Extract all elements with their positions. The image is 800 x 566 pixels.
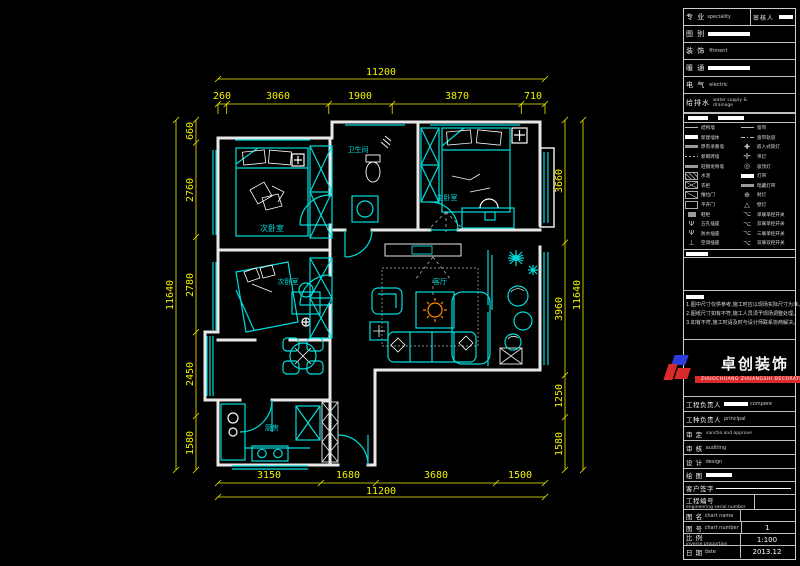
legend-label: 壁灯 (757, 201, 766, 207)
legend-ceilinglamp-icon: ◎ (740, 162, 755, 170)
legend-label: 灯带 (757, 173, 766, 179)
dim-right-1: 3960 (554, 297, 565, 321)
legend-wall-line-icon (684, 124, 699, 132)
bed-secondary-2 (236, 262, 298, 332)
legend-socket5-icon: Ψ (684, 220, 699, 228)
dim-left-3: 2450 (185, 362, 196, 386)
empty-remark-box (684, 257, 795, 291)
header-hvac-zh: 暖 通 (686, 63, 705, 73)
legend-closet-icon (684, 181, 699, 189)
cad-canvas: 11200 260 3060 1900 3870 710 3150 1680 3… (0, 0, 800, 566)
legend-label: 嵌入式筒灯 (757, 144, 780, 150)
sign-label-design: 设 计 (686, 457, 703, 467)
column-layer (322, 348, 522, 462)
window-layer (207, 125, 554, 469)
legend-downlight-icon: ✚ (740, 143, 755, 151)
info-table: 工程编号 engineering serial number 图 名 chart… (684, 495, 795, 558)
legend-label: 五孔插座 (701, 221, 719, 227)
info-label-number: 图 号 (686, 523, 703, 533)
legend-label: 平开门 (701, 201, 715, 207)
dim-bottom-3: 1500 (508, 470, 532, 481)
kitchen-counter (221, 404, 320, 461)
draw-bar (706, 473, 732, 477)
wardrobe-master (421, 128, 439, 202)
dim-bottom-0: 3150 (257, 470, 281, 481)
legend-switch4-icon: ⌥ (740, 239, 755, 247)
legend-label: 水泥 (701, 173, 710, 179)
legend-switch3-icon: ⌥ (740, 229, 755, 237)
sign-bar (724, 402, 748, 406)
sign-label-draw: 绘 图 (686, 470, 703, 480)
dim-right-3: 1580 (554, 432, 565, 456)
header-speciality-en: speciality (707, 14, 731, 20)
tv-cabinet (385, 244, 461, 256)
balcony-plants (508, 250, 538, 275)
legend-label: 鞋柜 (701, 211, 710, 217)
room-label-bedroom1: 次卧室 (260, 223, 284, 233)
notes-header-bar (686, 252, 708, 256)
legend-label: 射灯 (757, 192, 766, 198)
legend-label: 窗帘轨道 (757, 134, 775, 140)
legend-curtain-icon (740, 124, 755, 132)
company-logo-icon (664, 355, 690, 381)
dim-left-1: 2760 (185, 178, 196, 202)
sign-label-compere: 工程负责人 (686, 399, 721, 409)
legend-steelwall-icon (684, 162, 699, 170)
dim-right-total: 11640 (572, 280, 583, 310)
sign-label-principal: 工种负责人 (686, 414, 721, 424)
dim-bottom-1: 1680 (336, 470, 360, 481)
furniture-layer (221, 128, 538, 461)
legend-label: 暗藏灯带 (757, 182, 775, 188)
dim-bottom-total: 11200 (366, 486, 396, 497)
sign-label-audit: 审 核 (686, 443, 703, 453)
dim-top-4: 710 (524, 91, 542, 102)
dim-left-2: 2780 (185, 273, 196, 297)
sign-label-client: 客户签字 (686, 483, 714, 493)
dim-right-2: 1250 (554, 384, 565, 408)
legend-label: 吊灯 (757, 153, 766, 159)
toilet (366, 136, 391, 182)
auditor-signature-bar (779, 15, 793, 19)
info-en: chart number (705, 525, 739, 531)
legend-socketwp-icon: Ψ (684, 229, 699, 237)
note-line-3: 3.如有不符,施工时请及时与设计师联系协商解决。 (686, 319, 782, 327)
legend-table: 结构墙窗帘 新建墙体窗帘轨道 原有承重墙✚嵌入式筒灯 新砌砖墙✛吊灯 轻钢龙骨墙… (684, 123, 795, 248)
sign-label-approve: 审 定 (686, 429, 703, 439)
header-water-zh: 给排水 (686, 98, 710, 108)
legend-label: 空调插座 (701, 240, 719, 246)
legend-label: 单联单控开关 (757, 211, 785, 217)
notes-title-bar (686, 295, 704, 299)
legend-track-icon (740, 133, 755, 141)
room-label-bedroom2: 次卧室 (278, 277, 299, 286)
washing-machine (352, 196, 378, 222)
header-electric-zh: 电 气 (686, 80, 705, 90)
info-value-date: 2013.12 (741, 548, 793, 556)
header-table: 专 业 speciality 审核人 图 别 装 饰 fitment 暖 通 电… (684, 9, 795, 113)
title-block-panel: 专 业 speciality 审核人 图 别 装 饰 fitment 暖 通 电… (683, 8, 796, 560)
legend-label: 衣柜 (701, 182, 710, 188)
legend-pendant-icon: ✛ (740, 153, 755, 161)
legend-label: 轻钢龙骨墙 (701, 163, 724, 169)
dining-set (283, 338, 323, 374)
legend-label: 新砌砖墙 (701, 153, 719, 159)
header-category-zh: 图 别 (686, 29, 705, 39)
note-line-1: 1.图中尺寸仅供参考,施工时应以现场实际尺寸为准。 (686, 301, 782, 309)
dim-top-total: 11200 (366, 67, 396, 78)
legend-label: 双联单控开关 (757, 221, 785, 227)
header-fitment-zh: 装 饰 (686, 46, 705, 56)
company-name: 卓创装饰 (721, 353, 789, 374)
sign-en: auditing (706, 445, 727, 451)
sign-en: compere (750, 401, 772, 407)
balcony-chairs (505, 286, 532, 350)
dim-right-0: 3660 (554, 169, 565, 193)
legend-swingdoor-icon (684, 201, 699, 209)
dim-left-4: 1580 (185, 431, 196, 455)
dim-top-0: 260 (213, 91, 231, 102)
note-line-2: 2.图纸尺寸如有不符,施工人员须予现场调整处理。 (686, 310, 782, 318)
dim-top-2: 1900 (348, 91, 372, 102)
client-signature-line[interactable] (716, 488, 791, 489)
info-en: chart name (705, 513, 734, 519)
legend-label: 三联单控开关 (757, 230, 785, 236)
floor-plan-drawing: 11200 260 3060 1900 3870 710 3150 1680 3… (0, 0, 800, 566)
header-auditor-zh: 审核人 (753, 13, 774, 22)
bed-secondary-1 (236, 148, 308, 236)
hvac-bar (708, 66, 750, 70)
legend-brickwall-icon (684, 153, 699, 161)
notes-block: 1.图中尺寸仅供参考,施工时应以现场实际尺寸为准。 2.图纸尺寸如有不符,施工人… (684, 291, 795, 339)
legend-label: 双联双控开关 (757, 240, 785, 246)
legend-walllamp-icon: △ (740, 201, 755, 209)
legend-switch1-icon: ⌥ (740, 210, 755, 218)
room-label-living: 客厅 (433, 277, 447, 286)
header-electric-en: electric (709, 82, 727, 88)
legend-switch2-icon: ⌥ (740, 220, 755, 228)
room-label-master: 主卧室 (437, 193, 458, 202)
header-speciality-zh: 专 业 (686, 12, 705, 22)
dresser-master (462, 199, 514, 228)
legend-label: 防水插座 (701, 230, 719, 236)
info-en: date (705, 549, 716, 555)
armchair (372, 288, 402, 314)
sign-en: sanctio and approve (706, 431, 752, 436)
legend-header-bar2 (718, 116, 744, 120)
legend-cement-icon (684, 172, 699, 180)
legend-hiddenstrip-icon (740, 181, 755, 189)
info-value-scale: 1:100 (741, 536, 793, 544)
legend-header-bar1 (688, 116, 708, 120)
info-en: engineering serial number (686, 505, 746, 510)
dim-left-0: 660 (185, 122, 196, 140)
room-label-bathroom: 卫生间 (348, 145, 369, 154)
legend-slidingdoor-icon (684, 191, 699, 199)
info-label-date: 日 期 (686, 547, 703, 557)
side-table-lamp (370, 322, 388, 340)
legend-label: 推拉门 (701, 192, 715, 198)
header-fitment-en: fitment (709, 48, 727, 54)
sign-en: principal (724, 416, 746, 422)
legend-label: 原有承重墙 (701, 144, 724, 150)
header-water-en2: drainage (713, 103, 747, 108)
legend-label: 吸顶灯 (757, 163, 771, 169)
dim-left-total: 11640 (165, 280, 176, 310)
info-label-name: 图 名 (686, 511, 703, 521)
legend-socketac-icon: ⊥ (684, 239, 699, 247)
legend-label: 结构墙 (701, 125, 715, 131)
legend-header (684, 113, 795, 123)
info-value-number: 1 (742, 524, 793, 532)
room-label-kitchen: 厨房 (265, 423, 279, 432)
dim-top-1: 3060 (266, 91, 290, 102)
company-name-en: ZHUOCHUANG ZHUANGSHI DECORATION (695, 376, 800, 383)
info-label-serial: 工程编号 (686, 495, 714, 505)
notes-section-header (684, 249, 795, 257)
legend-newwall-icon (684, 133, 699, 141)
coffee-table (416, 292, 454, 328)
dim-bottom-2: 3680 (424, 470, 448, 481)
legend-label: 新建墙体 (701, 134, 719, 140)
legend-label: 窗帘 (757, 125, 766, 131)
legend-lightstrip-icon (740, 172, 755, 180)
dim-top-3: 3870 (445, 91, 469, 102)
signature-table: 工程负责人 compere 工种负责人 principal 审 定 sancti… (684, 397, 795, 495)
category-bar (708, 32, 750, 36)
company-logo-block: 卓创装饰 ZHUOCHUANG ZHUANGSHI DECORATION (684, 339, 795, 397)
legend-bearingwall-icon (684, 143, 699, 151)
legend-shoecabinet-icon (684, 210, 699, 218)
sign-en: design (706, 459, 723, 465)
legend-spotlight-icon: ⊕ (740, 191, 755, 199)
table-decor-orange (423, 298, 447, 322)
